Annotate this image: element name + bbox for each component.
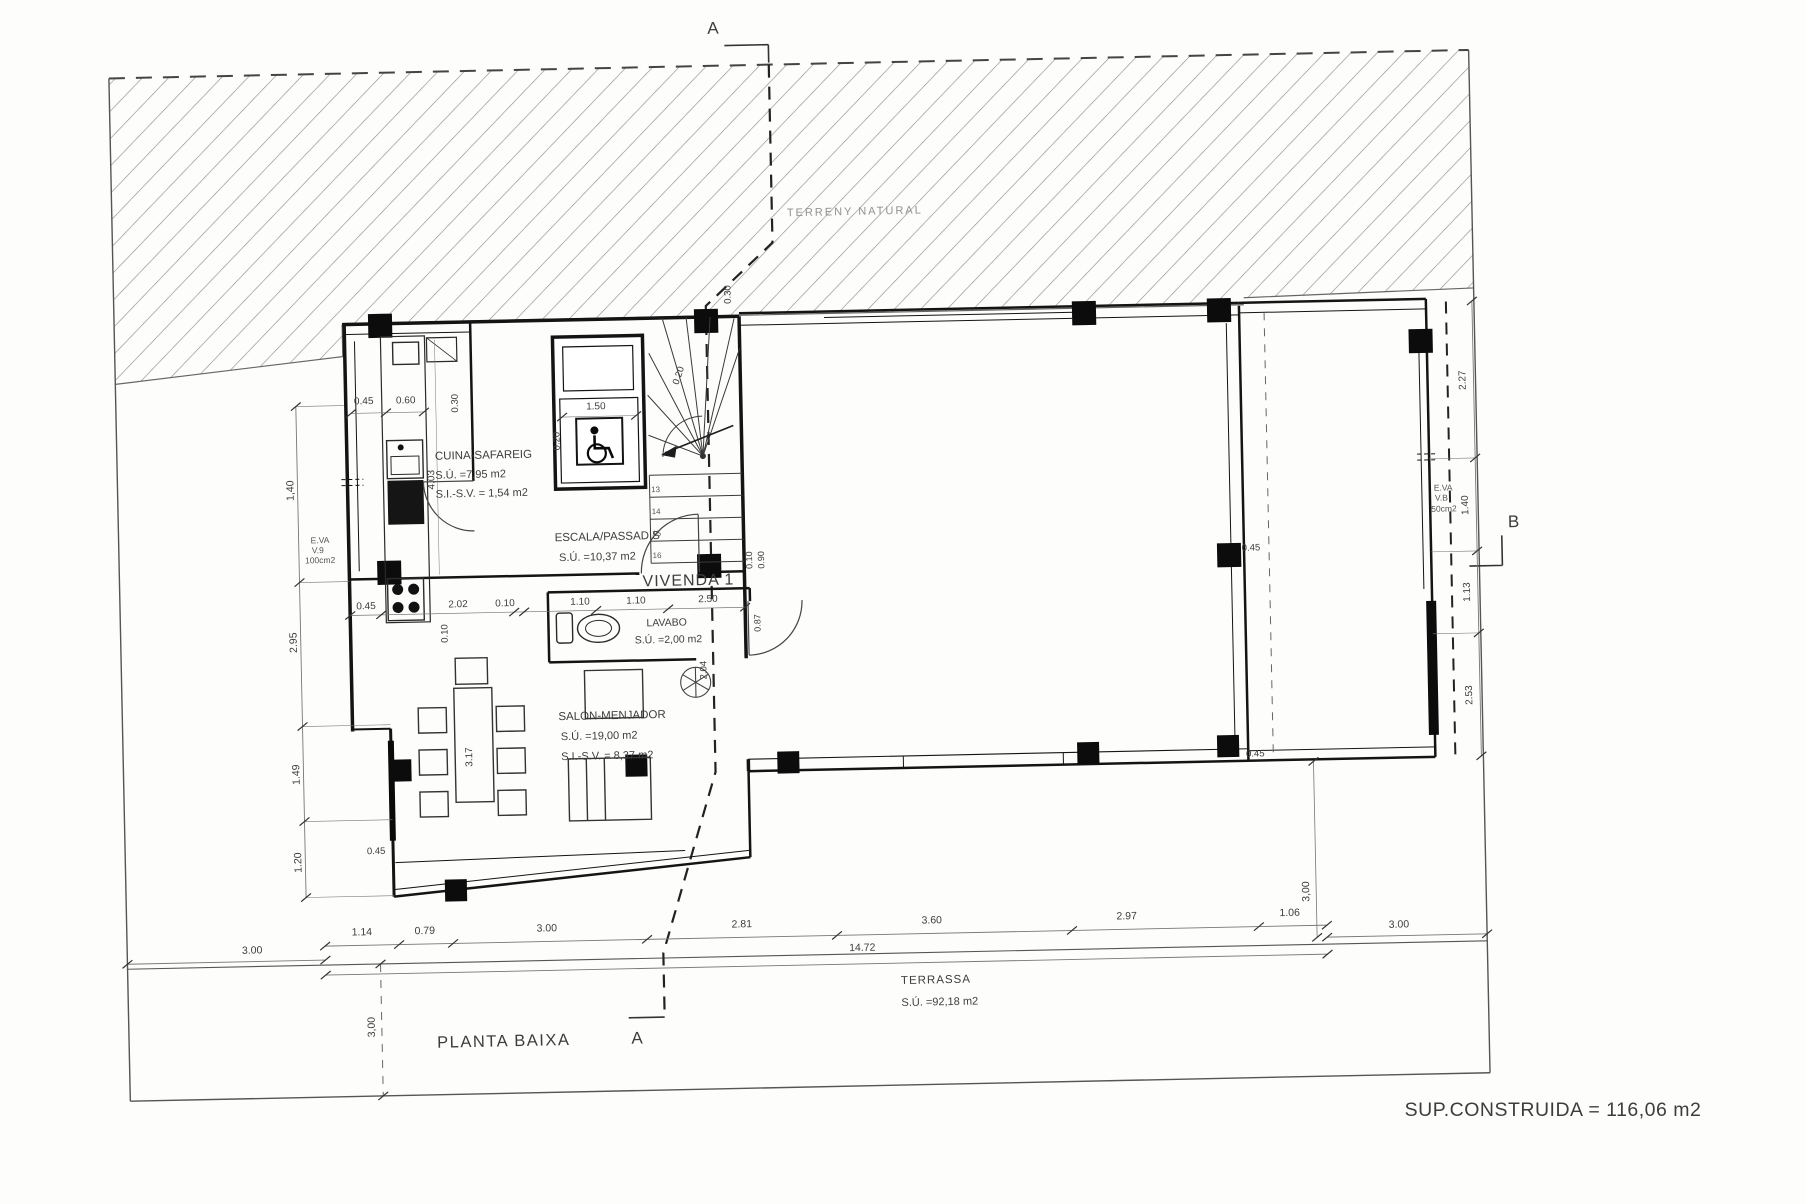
dim-090-hall: 0.90 bbox=[756, 551, 766, 569]
dim-rightchain-1: 2.27 bbox=[1457, 370, 1468, 390]
dining-chair bbox=[419, 750, 448, 776]
dim-row-045: 0.45 bbox=[356, 601, 376, 612]
dim-020-elevator: 0.20 bbox=[551, 432, 562, 451]
room-salon-name: SALON-MENJADOR bbox=[558, 709, 666, 723]
toilet bbox=[556, 612, 620, 643]
dim-bottom-2: 0.79 bbox=[414, 925, 435, 937]
dim-leftchain-4: 1.20 bbox=[292, 852, 304, 873]
room-terrassa-area1: S.Ú. =92,18 m2 bbox=[901, 994, 978, 1009]
dining-table bbox=[454, 688, 494, 803]
built-area-note: SUP.CONSTRUIDA = 116,06 m2 bbox=[1405, 1099, 1702, 1121]
room-escala-area1: S.Ú. =10,37 m2 bbox=[559, 550, 636, 565]
kitchen-appliance bbox=[387, 480, 424, 525]
structural-columns bbox=[368, 292, 1444, 903]
section-line-b bbox=[1446, 300, 1507, 760]
dim-010-salon: 0.10 bbox=[439, 624, 450, 643]
dim-150-elevator: 1.50 bbox=[586, 401, 606, 412]
dining-chair bbox=[498, 790, 527, 816]
vent-right-3: 50cm2 bbox=[1431, 503, 1457, 514]
sink-faucet bbox=[398, 444, 404, 450]
dim-bottom-3: 3.00 bbox=[536, 922, 557, 934]
dimension-ticks bbox=[109, 297, 1495, 1106]
dim-bottom-7: 1.06 bbox=[1279, 907, 1300, 919]
section-a-top: A bbox=[707, 19, 719, 38]
dim-row-250: 2.50 bbox=[698, 594, 718, 605]
dim-060-topleft: 0.60 bbox=[396, 395, 416, 406]
stair-direction-arrow bbox=[660, 425, 734, 458]
room-salon-area2: S.I.-S.V. = 8,37 m2 bbox=[561, 749, 653, 763]
dim-317-table: 3.17 bbox=[464, 747, 475, 767]
vent-left-1: E.VA bbox=[311, 535, 330, 545]
vent-right-1: E.VA bbox=[1434, 482, 1453, 492]
room-lavabo-name: LAVABO bbox=[646, 616, 687, 629]
dim-020-stairs: 0.20 bbox=[671, 365, 687, 386]
dim-010-hall: 0.10 bbox=[744, 551, 754, 569]
dim-bottom-6: 2.97 bbox=[1116, 910, 1137, 922]
room-cuina-area2: S.I.-S.V. = 1,54 m2 bbox=[436, 487, 528, 501]
salon-door bbox=[640, 514, 699, 573]
dim-045-right2: 0.45 bbox=[1246, 748, 1265, 759]
plan-title: PLANTA BAIXA bbox=[437, 1031, 571, 1052]
vent-left-2: V.9 bbox=[312, 545, 324, 555]
dim-row-110a: 1.10 bbox=[570, 596, 590, 607]
dim-204-door: 2.04 bbox=[698, 661, 709, 680]
dining-chair bbox=[497, 748, 526, 774]
sheet-labels: SUP.CONSTRUIDA = 116,06 m2 bbox=[1405, 1099, 1702, 1121]
dim-bottom-total: 14.72 bbox=[849, 942, 876, 955]
dim-leftchain-3: 1.49 bbox=[290, 764, 302, 785]
dim-leftchain-2: 2.95 bbox=[288, 632, 300, 653]
dim-045-bottomleft: 0.45 bbox=[367, 846, 386, 857]
dim-bottom-5: 3.60 bbox=[921, 914, 942, 926]
stair-step-16: 16 bbox=[652, 551, 662, 560]
dining-chair bbox=[420, 792, 449, 818]
room-vivenda-name: VIVENDA 1 bbox=[642, 571, 734, 590]
dim-vert-300-right: 3,00 bbox=[1300, 881, 1312, 902]
room-cuina-name: CUINA-SAFAREIG bbox=[435, 449, 532, 463]
floor-plan-drawing: PLANTA BAIXA bbox=[0, 0, 1805, 1204]
stair-step-13: 13 bbox=[651, 485, 661, 494]
right-porch-walls bbox=[1239, 299, 1444, 761]
room-escala-name: ESCALA/PASSADIS bbox=[555, 530, 661, 544]
dim-vert-300-left: 3,00 bbox=[366, 1017, 378, 1038]
dim-030-kitchen: 0.30 bbox=[450, 394, 461, 413]
vent-left-3: 100cm2 bbox=[305, 555, 336, 566]
floor-plan-sheet: PLANTA BAIXA bbox=[0, 0, 1805, 1204]
dim-045-topleft: 0.45 bbox=[354, 396, 374, 407]
dining-chair bbox=[455, 658, 488, 685]
room-lavabo-area1: S.Ú. =2,00 m2 bbox=[635, 632, 703, 646]
room-cuina-area1: S.Ú. =7,95 m2 bbox=[435, 467, 506, 481]
kitchen-sink bbox=[387, 440, 424, 479]
room-salon-area1: S.Ú. =19,00 m2 bbox=[561, 729, 638, 744]
dim-row-202: 2.02 bbox=[448, 599, 468, 610]
main-room-walls bbox=[739, 303, 1248, 771]
left-setback-dashed bbox=[381, 964, 384, 1096]
dim-bottom-1: 1.14 bbox=[351, 926, 372, 938]
dim-087-door: 0.87 bbox=[752, 614, 762, 632]
dining-set bbox=[417, 657, 526, 817]
vent-right-2: V.B bbox=[1435, 492, 1448, 502]
elevator bbox=[552, 335, 645, 489]
dim-right-300: 3.00 bbox=[1389, 918, 1410, 930]
dim-045-right1: 0.45 bbox=[1242, 542, 1261, 553]
room-terrassa-name: TERRASSA bbox=[901, 974, 971, 987]
dim-left-300: 3.00 bbox=[242, 944, 263, 956]
stair-step-15: 15 bbox=[652, 529, 662, 538]
stair-step-14: 14 bbox=[652, 507, 662, 516]
section-a-bottom: A bbox=[631, 1028, 643, 1047]
dim-row-010: 0.10 bbox=[495, 598, 515, 609]
dim-rightchain-4: 2.53 bbox=[1464, 685, 1475, 705]
dim-403-kitchen: 4.03 bbox=[426, 469, 437, 489]
dimension-lines bbox=[114, 301, 1490, 1101]
dim-rightchain-2: 1.40 bbox=[1460, 495, 1471, 515]
dim-row-110b: 1.10 bbox=[626, 595, 646, 606]
section-b: B bbox=[1508, 512, 1520, 531]
staircase bbox=[646, 316, 744, 563]
dining-chair bbox=[496, 706, 525, 732]
dim-rightchain-3: 1.13 bbox=[1462, 582, 1473, 602]
dining-chair bbox=[418, 708, 447, 734]
dim-030-top: 0.30 bbox=[722, 285, 733, 304]
dim-bottom-4: 2.81 bbox=[731, 918, 752, 930]
dim-leftchain-1: 1,40 bbox=[284, 480, 296, 501]
